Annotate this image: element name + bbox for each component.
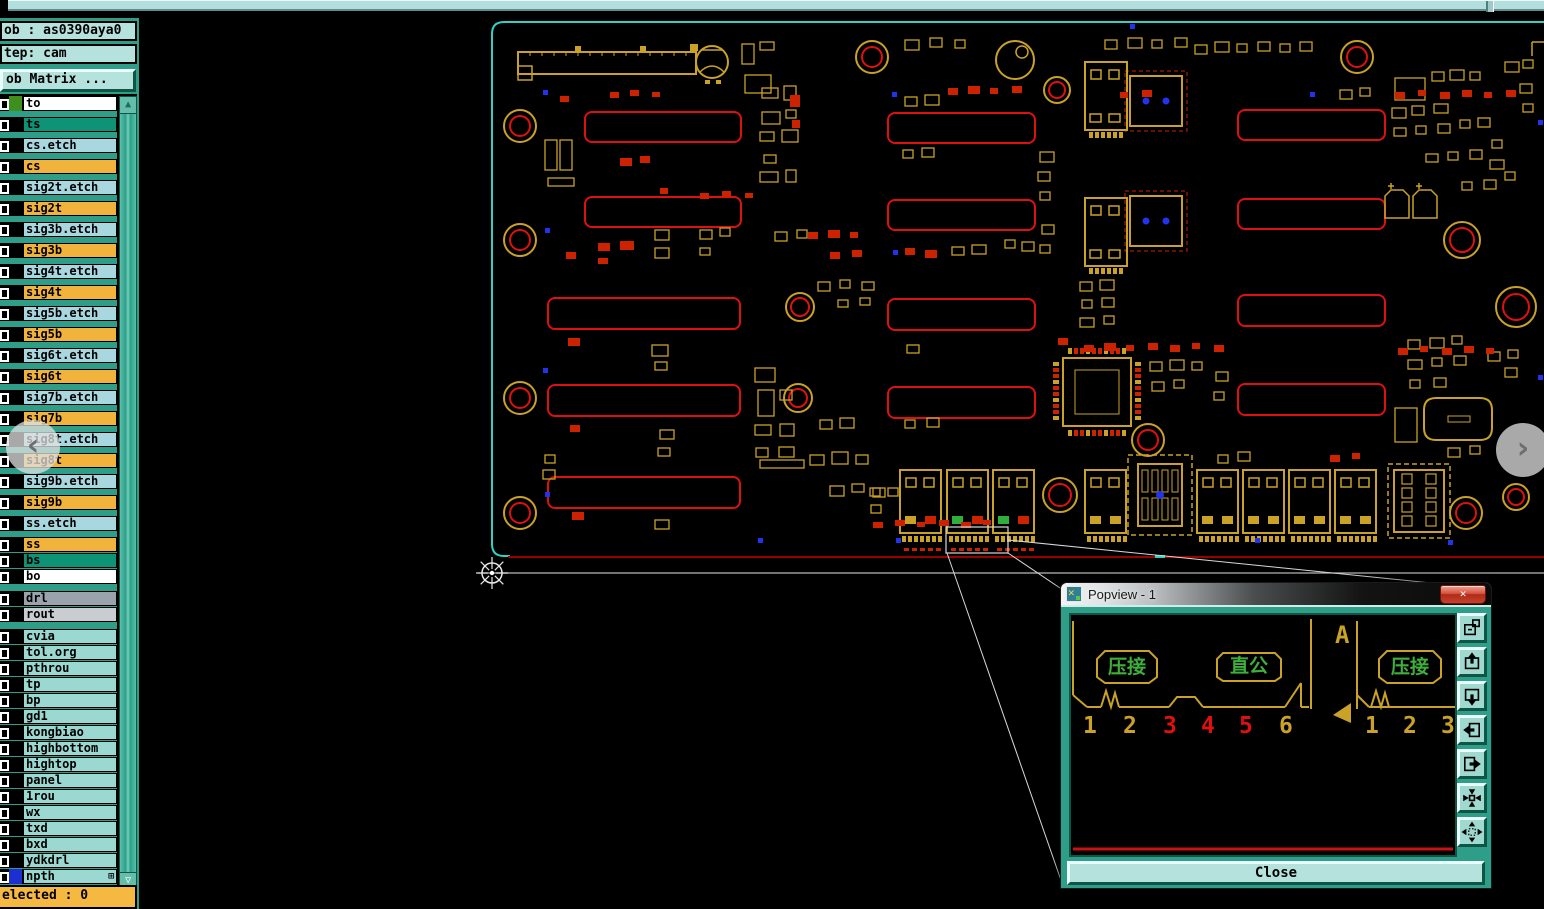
layer-visibility-checkbox[interactable] <box>0 516 9 531</box>
popview-pin-number: 1 <box>1365 713 1379 739</box>
layer-visibility-checkbox[interactable] <box>0 645 9 660</box>
layer-visibility-checkbox[interactable] <box>0 537 9 552</box>
layer-row-sig6t[interactable]: sig6t <box>0 369 117 384</box>
layer-visibility-checkbox[interactable] <box>0 138 9 153</box>
layer-color-swatch[interactable] <box>9 629 23 644</box>
layer-color-swatch[interactable] <box>9 709 23 724</box>
popview-body: A压接直公压接123456123 Close <box>1061 605 1491 888</box>
layer-name-label[interactable]: rout <box>23 607 117 622</box>
layer-visibility-checkbox[interactable] <box>0 348 9 363</box>
layer-name-label[interactable]: sig9b.etch <box>23 474 117 489</box>
chevron-left-icon: ‹ <box>27 428 39 463</box>
layer-row-sig4t[interactable]: sig4t <box>0 285 117 300</box>
popview-pin-number: 4 <box>1201 713 1215 739</box>
layer-color-swatch[interactable] <box>9 677 23 692</box>
layer-row-tol.org[interactable]: tol.org <box>0 645 117 660</box>
layer-row-rout[interactable]: rout <box>0 607 117 622</box>
popview-window: Popview - 1 ✕ A压接直公压接123456123 Close <box>1060 582 1492 889</box>
layer-row-kongbiao[interactable]: kongbiao <box>0 725 117 740</box>
layer-row-gd1[interactable]: gd1 <box>0 709 117 724</box>
layer-visibility-checkbox[interactable] <box>0 201 9 216</box>
layer-visibility-checkbox[interactable] <box>0 805 9 820</box>
layer-row-1rou[interactable]: 1rou <box>0 789 117 804</box>
layer-color-swatch[interactable] <box>9 757 23 772</box>
layer-row-sig9b[interactable]: sig9b <box>0 495 117 510</box>
layer-color-swatch[interactable] <box>9 853 23 868</box>
layer-color-swatch[interactable] <box>9 117 23 132</box>
popview-title: Popview - 1 <box>1088 587 1156 602</box>
layer-visibility-checkbox[interactable] <box>0 285 9 300</box>
popview-close-button[interactable]: Close <box>1067 861 1485 885</box>
pan-up-icon <box>1460 650 1484 674</box>
layer-name-label[interactable]: sig2t <box>23 201 117 216</box>
layer-row-sig9b.etch[interactable]: sig9b.etch <box>0 474 117 489</box>
popview-pin-number: 6 <box>1279 713 1293 739</box>
app-root: { "window": { "top_strip": "window-edge"… <box>0 0 1544 909</box>
layer-row-bs[interactable]: bs <box>0 553 117 568</box>
popview-corner-letter: A <box>1335 621 1350 649</box>
layer-list-scrollbar[interactable]: ▲ ▽ <box>117 96 137 890</box>
layer-visibility-checkbox[interactable] <box>0 757 9 772</box>
nav-previous-overlay[interactable]: ‹ <box>6 420 60 474</box>
layer-color-swatch[interactable] <box>9 96 23 111</box>
layer-row-sig7b.etch[interactable]: sig7b.etch <box>0 390 117 405</box>
layer-visibility-checkbox[interactable] <box>0 96 9 111</box>
layer-visibility-checkbox[interactable] <box>0 390 9 405</box>
layer-color-swatch[interactable] <box>9 869 23 884</box>
job-name-field: ob : as0390aya0 <box>0 21 137 41</box>
layer-name-label[interactable]: panel <box>23 773 117 788</box>
layer-name-label[interactable]: sig4t <box>23 285 117 300</box>
chevron-right-icon: › <box>1517 431 1529 466</box>
layer-color-swatch[interactable] <box>9 138 23 153</box>
arrows-outward-icon <box>1460 820 1484 844</box>
layer-color-swatch[interactable] <box>9 222 23 237</box>
layer-color-swatch[interactable] <box>9 369 23 384</box>
layer-name-label[interactable]: ss <box>23 537 117 552</box>
layer-color-swatch[interactable] <box>9 243 23 258</box>
layer-expand-badge[interactable]: ⊞ <box>108 870 114 883</box>
layer-row-ts[interactable]: ts <box>0 117 117 132</box>
layer-row-txd[interactable]: txd <box>0 821 117 836</box>
layer-name-label[interactable]: sig2t.etch <box>23 180 117 195</box>
new-popview-button[interactable] <box>1457 613 1487 643</box>
layer-color-swatch[interactable] <box>9 327 23 342</box>
layer-visibility-checkbox[interactable] <box>0 853 9 868</box>
step-name-field: tep: cam <box>0 44 137 64</box>
layer-color-swatch[interactable] <box>9 474 23 489</box>
layer-visibility-checkbox[interactable] <box>0 495 9 510</box>
layer-name-label[interactable]: cs.etch <box>23 138 117 153</box>
layer-visibility-checkbox[interactable] <box>0 474 9 489</box>
layer-name-label[interactable]: sig6t.etch <box>23 348 117 363</box>
layer-name-label[interactable]: 1rou <box>23 789 117 804</box>
layer-visibility-checkbox[interactable] <box>0 327 9 342</box>
layer-row-to[interactable]: to <box>0 96 117 111</box>
layer-visibility-checkbox[interactable] <box>0 222 9 237</box>
layer-color-swatch[interactable] <box>9 348 23 363</box>
layer-row-sig5b.etch[interactable]: sig5b.etch <box>0 306 117 321</box>
layer-visibility-checkbox[interactable] <box>0 553 9 568</box>
layer-name-label[interactable]: gd1 <box>23 709 117 724</box>
layer-color-swatch[interactable] <box>9 516 23 531</box>
zoom-in-button[interactable] <box>1457 783 1487 813</box>
layer-color-swatch[interactable] <box>9 285 23 300</box>
layer-color-swatch[interactable] <box>9 741 23 756</box>
layer-color-swatch[interactable] <box>9 805 23 820</box>
layer-visibility-checkbox[interactable] <box>0 264 9 279</box>
layer-name-label[interactable]: cvia <box>23 629 117 644</box>
layer-visibility-checkbox[interactable] <box>0 677 9 692</box>
layer-visibility-checkbox[interactable] <box>0 243 9 258</box>
layer-name-label[interactable]: ss.etch <box>23 516 117 531</box>
layer-name-label[interactable]: sig9b <box>23 495 117 510</box>
zoom-out-button[interactable] <box>1457 817 1487 847</box>
popview-pin-number: 2 <box>1403 713 1417 739</box>
layer-row-ydkdrl[interactable]: ydkdrl <box>0 853 117 868</box>
layer-name-label[interactable]: ydkdrl <box>23 853 117 868</box>
layer-visibility-checkbox[interactable] <box>0 159 9 174</box>
copy-view-icon <box>1460 616 1484 640</box>
layer-visibility-checkbox[interactable] <box>0 773 9 788</box>
layer-row-hightop[interactable]: hightop <box>0 757 117 772</box>
popview-pin-number: 2 <box>1123 713 1137 739</box>
layer-name-label[interactable]: hightop <box>23 757 117 772</box>
pan-right-button[interactable] <box>1457 749 1487 779</box>
layer-name-label[interactable]: sig3b <box>23 243 117 258</box>
layer-visibility-checkbox[interactable] <box>0 869 9 884</box>
layer-name-label[interactable]: bs <box>23 553 117 568</box>
pan-left-icon <box>1460 718 1484 742</box>
layer-visibility-checkbox[interactable] <box>0 369 9 384</box>
layer-name-label[interactable]: bo <box>23 569 117 584</box>
window-top-strip <box>8 0 1544 11</box>
layer-color-swatch[interactable] <box>9 645 23 660</box>
layer-color-swatch[interactable] <box>9 553 23 568</box>
layer-row-pthrou[interactable]: pthrou <box>0 661 117 676</box>
nav-next-overlay[interactable]: › <box>1496 423 1544 477</box>
layer-color-swatch[interactable] <box>9 495 23 510</box>
layer-name-label[interactable]: txd <box>23 821 117 836</box>
layer-visibility-checkbox[interactable] <box>0 569 9 584</box>
layer-visibility-checkbox[interactable] <box>0 709 9 724</box>
layer-list-wrap: totscs.etchcssig2t.etchsig2tsig3b.etchsi… <box>0 94 137 890</box>
layer-row-bp[interactable]: bp <box>0 693 117 708</box>
window-strip-seam <box>1486 1 1494 12</box>
layer-visibility-checkbox[interactable] <box>0 180 9 195</box>
scrollbar-up-button[interactable]: ▲ <box>119 96 137 114</box>
layer-row-panel[interactable]: panel <box>0 773 117 788</box>
layer-row-cs.etch[interactable]: cs.etch <box>0 138 117 153</box>
scrollbar-track[interactable] <box>119 114 137 872</box>
layer-row-cs[interactable]: cs <box>0 159 117 174</box>
pan-down-button[interactable] <box>1457 681 1487 711</box>
layer-name-label[interactable]: drl <box>23 591 117 606</box>
layer-color-swatch[interactable] <box>9 569 23 584</box>
layer-color-swatch[interactable] <box>9 264 23 279</box>
layer-row-drl[interactable]: drl <box>0 591 117 606</box>
layer-color-swatch[interactable] <box>9 661 23 676</box>
layer-list: totscs.etchcssig2t.etchsig2tsig3b.etchsi… <box>0 96 117 890</box>
pan-down-icon <box>1460 684 1484 708</box>
layer-color-swatch[interactable] <box>9 725 23 740</box>
layer-visibility-checkbox[interactable] <box>0 661 9 676</box>
layer-color-swatch[interactable] <box>9 821 23 836</box>
layer-name-label[interactable]: sig3b.etch <box>23 222 117 237</box>
layer-name-label[interactable]: cs <box>23 159 117 174</box>
layer-visibility-checkbox[interactable] <box>0 117 9 132</box>
layer-row-highbottom[interactable]: highbottom <box>0 741 117 756</box>
job-matrix-button[interactable]: ob Matrix ... <box>0 69 136 92</box>
popview-toolbar <box>1457 613 1489 851</box>
layer-name-label[interactable]: ts <box>23 117 117 132</box>
layer-name-label[interactable]: bp <box>23 693 117 708</box>
layer-visibility-checkbox[interactable] <box>0 789 9 804</box>
popview-pin-number: 3 <box>1163 713 1177 739</box>
layer-name-label[interactable]: highbottom <box>23 741 117 756</box>
layer-name-label[interactable]: to <box>23 96 117 111</box>
layer-color-swatch[interactable] <box>9 180 23 195</box>
pan-left-button[interactable] <box>1457 715 1487 745</box>
layer-color-swatch[interactable] <box>9 773 23 788</box>
layer-visibility-checkbox[interactable] <box>0 629 9 644</box>
layer-name-label[interactable]: wx <box>23 805 117 820</box>
layer-row-sig3b[interactable]: sig3b <box>0 243 117 258</box>
pan-right-icon <box>1460 752 1484 776</box>
layer-row-tp[interactable]: tp <box>0 677 117 692</box>
popview-box-label: 压接 <box>1391 656 1429 678</box>
popview-box-label: 压接 <box>1108 656 1146 678</box>
layer-row-bo[interactable]: bo <box>0 569 117 584</box>
layer-color-swatch[interactable] <box>9 591 23 606</box>
popview-pin-number: 1 <box>1083 713 1097 739</box>
layer-name-label[interactable]: npth⊞ <box>23 869 117 884</box>
popview-window-icon <box>1066 586 1082 602</box>
layer-row-bxd[interactable]: bxd <box>0 837 117 852</box>
layer-row-ss.etch[interactable]: ss.etch <box>0 516 117 531</box>
layer-row-npth[interactable]: npth⊞ <box>0 869 117 884</box>
layer-color-swatch[interactable] <box>9 390 23 405</box>
layer-color-swatch[interactable] <box>9 837 23 852</box>
popview-pin-number: 3 <box>1441 713 1455 739</box>
layer-name-label[interactable]: tol.org <box>23 645 117 660</box>
layer-row-sig4t.etch[interactable]: sig4t.etch <box>0 264 117 279</box>
layer-visibility-checkbox[interactable] <box>0 741 9 756</box>
layer-name-label[interactable]: sig7b.etch <box>23 390 117 405</box>
layer-row-sig5b[interactable]: sig5b <box>0 327 117 342</box>
popview-box-label: 直公 <box>1230 654 1268 677</box>
layer-name-label[interactable]: kongbiao <box>23 725 117 740</box>
layer-visibility-checkbox[interactable] <box>0 725 9 740</box>
layer-color-swatch[interactable] <box>9 693 23 708</box>
layer-color-swatch[interactable] <box>9 201 23 216</box>
layer-color-swatch[interactable] <box>9 607 23 622</box>
layer-row-cvia[interactable]: cvia <box>0 629 117 644</box>
layer-color-swatch[interactable] <box>9 306 23 321</box>
layer-visibility-checkbox[interactable] <box>0 411 9 426</box>
layer-row-wx[interactable]: wx <box>0 805 117 820</box>
layer-color-swatch[interactable] <box>9 159 23 174</box>
layer-visibility-checkbox[interactable] <box>0 607 9 622</box>
layer-visibility-checkbox[interactable] <box>0 821 9 836</box>
layer-visibility-checkbox[interactable] <box>0 693 9 708</box>
layer-visibility-checkbox[interactable] <box>0 591 9 606</box>
popview-titlebar[interactable]: Popview - 1 <box>1061 583 1491 605</box>
layer-row-sig2t[interactable]: sig2t <box>0 201 117 216</box>
popview-canvas: A压接直公压接123456123 <box>1069 613 1457 857</box>
layer-name-label[interactable]: sig4t.etch <box>23 264 117 279</box>
layer-name-label[interactable]: tp <box>23 677 117 692</box>
selected-count-status: elected : 0 <box>0 885 137 909</box>
layer-name-label[interactable]: sig5b <box>23 327 117 342</box>
popview-pin-number: 5 <box>1239 713 1253 739</box>
layer-row-sig6t.etch[interactable]: sig6t.etch <box>0 348 117 363</box>
layer-name-label[interactable]: sig5b.etch <box>23 306 117 321</box>
pan-up-button[interactable] <box>1457 647 1487 677</box>
close-window-button[interactable]: ✕ <box>1440 585 1486 604</box>
layer-name-label[interactable]: pthrou <box>23 661 117 676</box>
layer-color-swatch[interactable] <box>9 537 23 552</box>
layer-name-label[interactable]: sig6t <box>23 369 117 384</box>
layer-color-swatch[interactable] <box>9 789 23 804</box>
layer-row-sig2t.etch[interactable]: sig2t.etch <box>0 180 117 195</box>
layer-row-sig3b.etch[interactable]: sig3b.etch <box>0 222 117 237</box>
layer-name-label[interactable]: bxd <box>23 837 117 852</box>
layer-visibility-checkbox[interactable] <box>0 306 9 321</box>
layer-visibility-checkbox[interactable] <box>0 837 9 852</box>
layer-row-ss[interactable]: ss <box>0 537 117 552</box>
arrows-inward-icon <box>1460 786 1484 810</box>
